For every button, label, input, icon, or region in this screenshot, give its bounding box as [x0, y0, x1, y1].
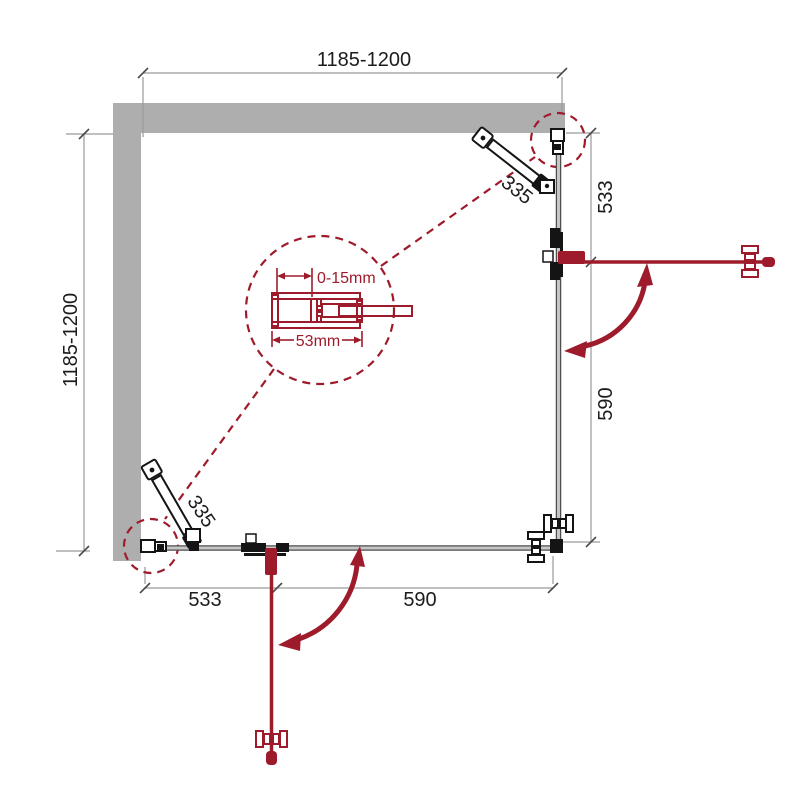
detail-label-width: 53mm [296, 333, 340, 350]
wall-top [113, 103, 565, 133]
door-right-endcap [762, 257, 775, 267]
dimension-label-left-height: 1185-1200 [60, 293, 82, 387]
dimension-label-right-lower: 590 [595, 387, 617, 420]
glass-edge-section [339, 306, 412, 316]
diagram-canvas: 1185-1200 1185-1200 533 590 533 590 [0, 0, 800, 800]
arrowhead-right [304, 273, 312, 280]
swing-arrowhead-left [564, 341, 587, 358]
open-doors [256, 246, 775, 765]
door-bottom-hinge [265, 548, 277, 575]
swing-arrowhead-up [637, 263, 653, 287]
swing-arrowhead-left [278, 633, 301, 651]
door-bottom-swing-arc [299, 565, 357, 639]
dimension-left-height: 1185-1200 [56, 129, 113, 556]
dimension-label-bottom-right: 590 [403, 589, 436, 611]
dimension-label-right-upper: 533 [595, 180, 617, 213]
leader-line-bottom [165, 369, 274, 519]
glass-profile-section [321, 299, 412, 322]
arrowhead-left [277, 273, 285, 280]
door-bottom-endcap [266, 751, 277, 765]
walls [113, 103, 565, 561]
dimension-label-bottom-left: 533 [188, 589, 221, 611]
dimension-label-top-width: 1185-1200 [317, 49, 411, 71]
arrowhead-left [272, 337, 280, 344]
wall-hinge-top [551, 129, 564, 154]
door-right-hinge [558, 251, 585, 264]
support-bar-top-clamp-screw [545, 184, 549, 188]
support-bar-bottom-clamp-foot [189, 542, 199, 551]
wall-left [113, 103, 141, 561]
shower-enclosure-installation-diagram: 1185-1200 1185-1200 533 590 533 590 [0, 0, 800, 800]
wall-hinge-bottom [141, 540, 166, 552]
corner-bracket [550, 539, 563, 553]
support-bar-bottom-glass-clamp [186, 529, 200, 542]
detail-label-adjustment: 0-15mm [317, 270, 376, 287]
adjustment-detail-drawing: 0-15mm 53mm [272, 268, 412, 350]
dimension-bottom-side: 533 590 [140, 556, 558, 611]
door-right-swing-arc [585, 282, 645, 346]
arrowhead-right [354, 337, 362, 344]
